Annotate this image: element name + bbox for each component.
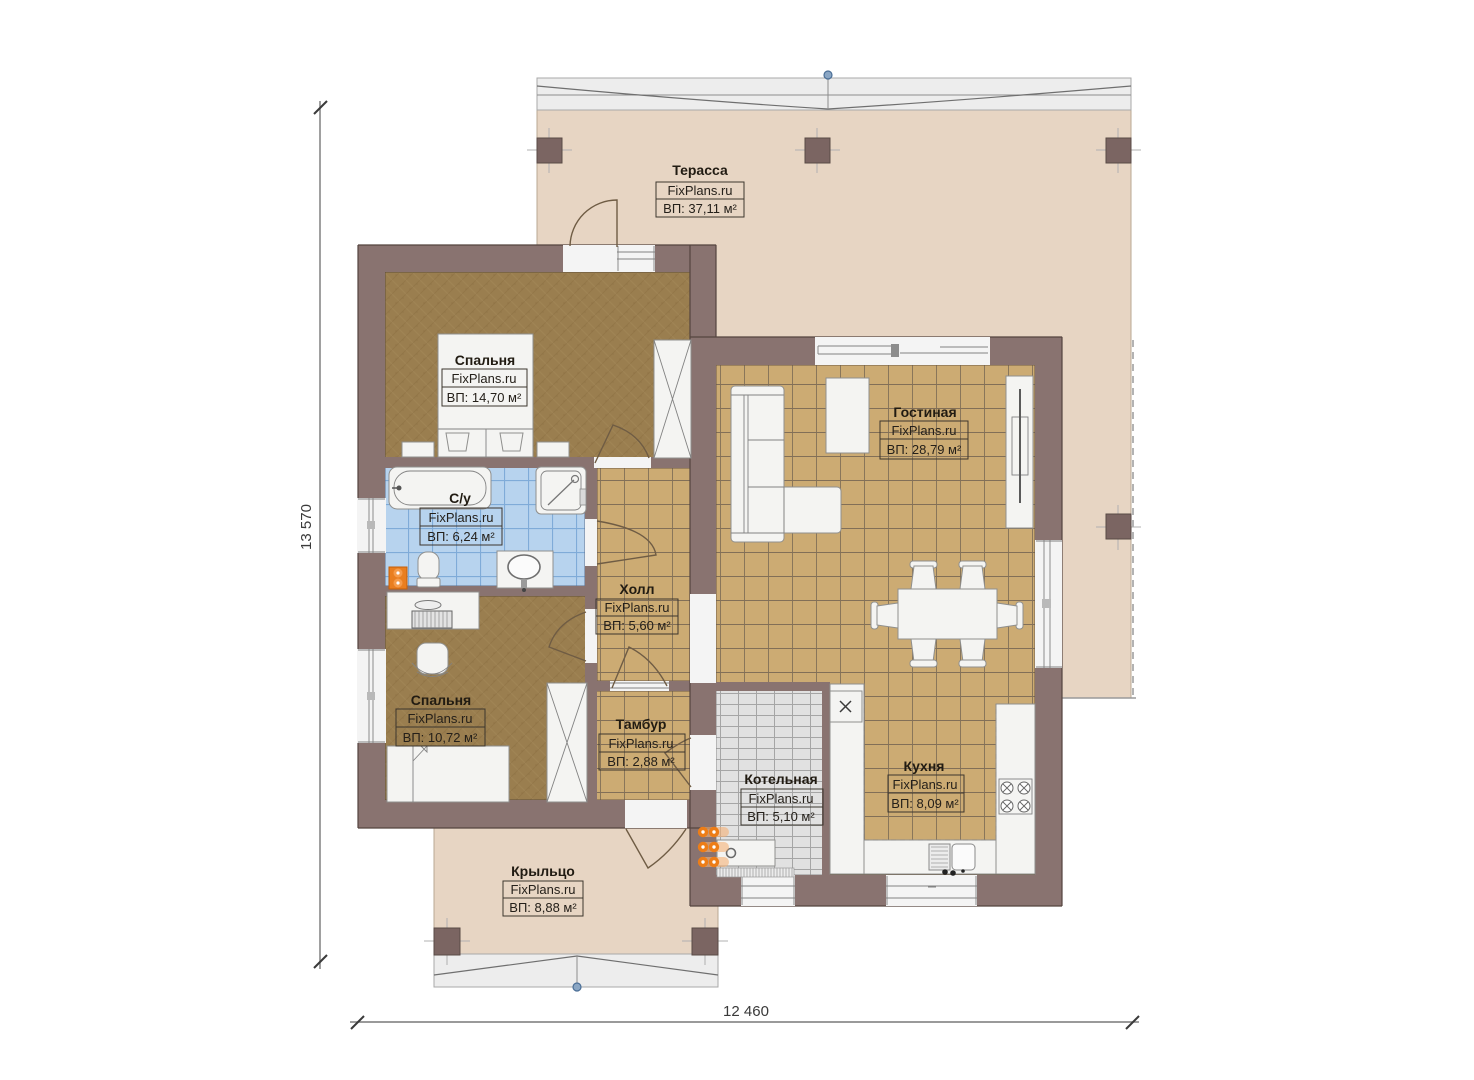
svg-text:С/у: С/у	[449, 490, 471, 506]
svg-text:FixPlans.ru: FixPlans.ru	[428, 510, 493, 525]
svg-text:FixPlans.ru: FixPlans.ru	[510, 882, 575, 897]
svg-text:ВП: 8,88 м²: ВП: 8,88 м²	[509, 900, 577, 915]
svg-text:ВП: 37,11 м²: ВП: 37,11 м²	[663, 201, 737, 216]
svg-text:ВП: 10,72 м²: ВП: 10,72 м²	[403, 730, 478, 745]
svg-text:FixPlans.ru: FixPlans.ru	[608, 736, 673, 751]
svg-text:FixPlans.ru: FixPlans.ru	[891, 423, 956, 438]
svg-text:Терасса: Терасса	[672, 162, 728, 178]
svg-text:FixPlans.ru: FixPlans.ru	[892, 777, 957, 792]
svg-text:Крыльцо: Крыльцо	[511, 863, 575, 879]
svg-text:ВП: 2,88 м²: ВП: 2,88 м²	[607, 754, 675, 769]
svg-text:ВП: 6,24 м²: ВП: 6,24 м²	[427, 529, 495, 544]
svg-text:Котельная: Котельная	[744, 771, 817, 787]
svg-text:Тамбур: Тамбур	[616, 716, 667, 732]
svg-text:Гостиная: Гостиная	[893, 404, 956, 420]
svg-text:Кухня: Кухня	[904, 758, 945, 774]
svg-text:Спальня: Спальня	[411, 692, 471, 708]
svg-text:13 570: 13 570	[298, 504, 315, 550]
svg-text:ВП: 28,79 м²: ВП: 28,79 м²	[887, 442, 962, 457]
svg-text:FixPlans.ru: FixPlans.ru	[407, 711, 472, 726]
svg-text:FixPlans.ru: FixPlans.ru	[748, 791, 813, 806]
svg-text:ВП: 14,70 м²: ВП: 14,70 м²	[447, 390, 522, 405]
svg-text:Холл: Холл	[619, 581, 654, 597]
svg-text:12 460: 12 460	[723, 1003, 769, 1020]
svg-text:ВП: 5,10 м²: ВП: 5,10 м²	[747, 809, 815, 824]
svg-text:FixPlans.ru: FixPlans.ru	[451, 371, 516, 386]
svg-text:FixPlans.ru: FixPlans.ru	[667, 183, 732, 198]
svg-text:Спальня: Спальня	[455, 352, 515, 368]
svg-text:FixPlans.ru: FixPlans.ru	[604, 600, 669, 615]
svg-text:ВП: 8,09 м²: ВП: 8,09 м²	[891, 796, 959, 811]
svg-text:ВП: 5,60 м²: ВП: 5,60 м²	[603, 618, 671, 633]
